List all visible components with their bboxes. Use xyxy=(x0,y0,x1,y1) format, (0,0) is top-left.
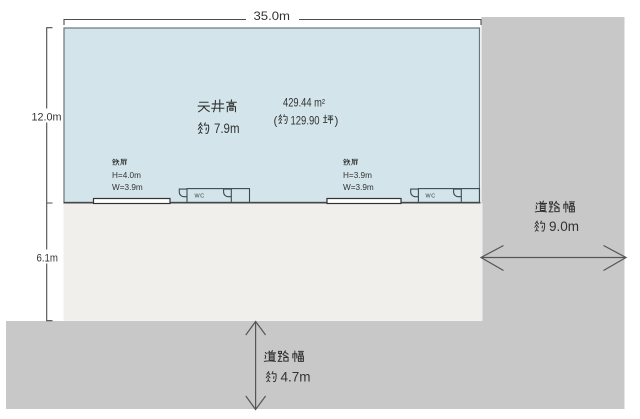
svg-text:7.9m: 7.9m xyxy=(214,121,240,136)
svg-text:H=4.0m: H=4.0m xyxy=(112,171,141,180)
svg-text:WC: WC xyxy=(426,193,436,199)
svg-text:W=3.9m: W=3.9m xyxy=(112,183,143,192)
svg-text:12.0m: 12.0m xyxy=(32,112,62,124)
svg-text:H=3.9m: H=3.9m xyxy=(343,171,372,180)
svg-text:35.0m: 35.0m xyxy=(254,9,291,23)
svg-text:429.44 m²: 429.44 m² xyxy=(283,97,325,110)
svg-text:WC: WC xyxy=(195,193,205,199)
svg-text:(: ( xyxy=(274,114,278,127)
svg-text:W=3.9m: W=3.9m xyxy=(343,183,374,192)
svg-text:9.0m: 9.0m xyxy=(549,219,579,234)
svg-text:6.1m: 6.1m xyxy=(37,253,59,265)
svg-text:129.90: 129.90 xyxy=(291,114,320,127)
svg-text:4.7m: 4.7m xyxy=(281,370,311,385)
svg-text:): ) xyxy=(335,114,339,127)
